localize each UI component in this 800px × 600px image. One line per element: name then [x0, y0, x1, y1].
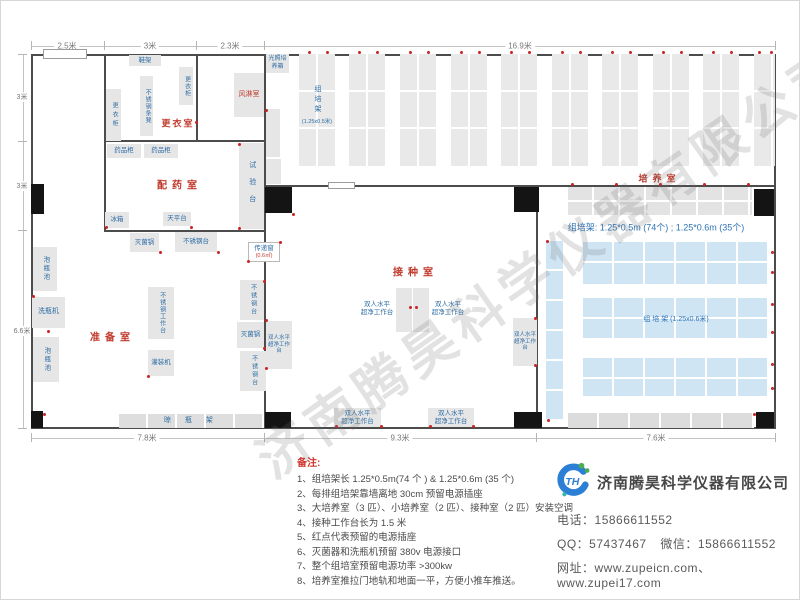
power-socket-dot [105, 226, 108, 229]
qq-number: 57437467 [589, 537, 646, 551]
dim-tick [104, 41, 105, 50]
power-socket-dot [292, 213, 295, 216]
power-socket-dot [770, 51, 773, 54]
phone-label: 电话： [557, 513, 595, 527]
dim-tick [31, 41, 32, 50]
blue-rack-vertical [546, 241, 563, 421]
culture-rack [754, 54, 775, 166]
dim-tick [18, 54, 27, 55]
clean-bench-right: 双人水平 超净工作台 [513, 318, 537, 366]
wardrobe-left: 更衣柜 [106, 89, 121, 141]
bottle-pool: 泡瓶池 [33, 337, 59, 382]
transfer-window-size: (0.6㎡) [256, 253, 273, 259]
power-socket-dot [730, 51, 733, 54]
power-socket-dot [265, 319, 268, 322]
power-socket-dot [534, 317, 537, 320]
clean-bench-line2: 超净工作台 [432, 309, 465, 317]
power-socket-dot [771, 303, 774, 306]
power-socket-dot [771, 251, 774, 254]
power-socket-dot [238, 227, 241, 230]
room-label-prep: 准备室 [85, 329, 135, 344]
power-socket-dot [263, 347, 266, 350]
dim-tick [775, 41, 776, 50]
wall-inoculation-right [536, 185, 538, 429]
company-phone-line: 电话：15866611552 [557, 511, 793, 528]
wechat-label: 微信： [660, 537, 698, 551]
notes-title: 备注: [297, 454, 597, 469]
clean-bench-line1: 双人水平 [435, 301, 461, 309]
power-socket-dot [217, 251, 220, 254]
door-opening [514, 187, 539, 212]
door-opening [31, 184, 44, 214]
medicine-cabinet: 药品柜 [107, 144, 141, 158]
gray-rack-bottom [568, 413, 754, 428]
culture-rack-label: 组培架 (1.25x0.5米) [298, 85, 336, 125]
rack-name: 组培架 [312, 85, 322, 115]
clean-bench-line2: 超净工作台 [361, 309, 394, 317]
culture-rack [451, 54, 487, 166]
door-opening [756, 412, 774, 428]
floor-plan-page: 2.5米 3米 2.3米 16.9米 3米 3米 6.6米 7.8米 9.3米 … [0, 0, 800, 600]
company-name: 济南腾昊科学仪器有限公司 [597, 472, 789, 493]
clean-bench-bottom: 双人水平 超净工作台 [334, 408, 381, 427]
dim-tick [18, 428, 27, 429]
power-socket-dot [415, 306, 418, 309]
balance-table: 天平台 [163, 212, 191, 226]
clean-bench-line2: 超净工作台 [266, 342, 292, 355]
power-socket-dot [662, 51, 665, 54]
phone-number: 15866611552 [595, 513, 673, 527]
power-socket-dot [380, 425, 383, 428]
light-incubator: 光照培养箱 [266, 54, 289, 73]
culture-rack [501, 54, 537, 166]
blue-rack-label: 组 培 架 (1.25x0.6米) [643, 314, 708, 324]
power-socket-dot [472, 425, 475, 428]
power-socket-dot [478, 51, 481, 54]
note-item: 4、接种工作台长为 1.5 米 [297, 517, 597, 532]
culture-rack [552, 54, 588, 166]
power-socket-dot [680, 51, 683, 54]
power-socket-dot [409, 306, 412, 309]
power-socket-dot [571, 183, 574, 186]
clean-bench-line1: 双人水平 [268, 335, 290, 342]
power-socket-dot [308, 51, 311, 54]
dim-bottom-2: 9.3米 [387, 433, 412, 444]
power-socket-dot [358, 51, 361, 54]
clean-bench-line2: 超净工作台 [341, 418, 374, 426]
wardrobe-right: 更衣柜 [179, 67, 193, 105]
power-socket-dot [771, 331, 774, 334]
wall-changing-left [104, 54, 106, 232]
dim-tick [18, 230, 27, 231]
power-socket-dot [546, 240, 549, 243]
company-qq-line: QQ：57437467 微信：15866611552 [557, 535, 793, 552]
dim-bottom-3: 7.6米 [643, 433, 668, 444]
steel-table: 不锈钢台 [240, 280, 264, 320]
door-opening [754, 189, 774, 216]
power-socket-dot [629, 51, 632, 54]
dim-tick [264, 41, 265, 50]
room-label-changing: 更衣室 [159, 117, 194, 130]
power-socket-dot [712, 51, 715, 54]
culture-rack [349, 54, 385, 166]
company-web-line: 网址：www.zupeicn.com、www.zupei17.com [557, 559, 793, 590]
power-socket-dot [159, 251, 162, 254]
dim-left-1: 3米 [14, 92, 31, 102]
power-socket-dot [703, 183, 706, 186]
power-socket-dot [43, 413, 46, 416]
clean-bench-label: 双人水平 超净工作台 [430, 301, 466, 317]
filling-machine: 灌装机 [148, 350, 174, 376]
power-socket-dot [753, 413, 756, 416]
culture-rack [400, 54, 436, 166]
power-socket-dot [409, 51, 412, 54]
clean-bench-line1: 双人水平 [514, 332, 536, 339]
power-socket-dot [279, 241, 282, 244]
notes-block: 备注: 1、组培架长 1.25*0.5m(74 个 ) & 1.25*0.6m … [297, 454, 597, 589]
incubator-box [266, 109, 280, 157]
power-socket-dot [265, 109, 268, 112]
company-logo-icon: TH [553, 461, 591, 499]
test-bench: 试验台 [239, 143, 264, 229]
clean-bench-line1: 双人水平 [364, 301, 390, 309]
door-opening [265, 187, 292, 213]
dim-top-3: 2.3米 [217, 41, 242, 52]
power-socket-dot [263, 280, 266, 283]
power-socket-dot [771, 363, 774, 366]
note-item: 8、培养室推拉门地轨和地面一平，方便小推车推送。 [297, 575, 597, 590]
door-opening [265, 412, 291, 428]
power-socket-dot [579, 51, 582, 54]
window-top-left [43, 49, 87, 59]
dim-tick [775, 433, 776, 442]
note-item: 2、每排组培架靠墙离地 30cm 预留电源插座 [297, 488, 597, 503]
company-block: TH 济南腾昊科学仪器有限公司 电话：15866611552 QQ：574374… [553, 461, 793, 590]
shoe-rack: 鞋架 [129, 55, 161, 66]
logo-text: TH [565, 477, 579, 488]
power-socket-dot [534, 364, 537, 367]
sterilizer: 灭菌锅 [130, 233, 159, 252]
transfer-window-label: 传递窗 [254, 245, 274, 252]
steel-workbench: 不锈钢工作台 [148, 287, 174, 339]
steel-strip-bench: 不锈钢条凳 [140, 76, 153, 136]
clean-bench-label: 双人水平 超净工作台 [359, 301, 395, 317]
transfer-window: 传递窗 (0.6㎡) [248, 242, 280, 262]
blue-rack-row [583, 358, 769, 396]
room-label-dispensing: 配药室 [152, 177, 202, 192]
note-item: 5、红点代表预留的电源插座 [297, 531, 597, 546]
dim-line-left [23, 54, 24, 429]
fridge: 冰箱 [105, 212, 129, 228]
dim-left-3: 6.6米 [11, 326, 34, 336]
power-socket-dot [335, 425, 338, 428]
power-socket-dot [771, 387, 774, 390]
power-socket-dot [147, 375, 150, 378]
company-logo: TH [553, 461, 591, 504]
power-socket-dot [615, 183, 618, 186]
culture-rack [602, 54, 638, 166]
clean-bench-line2: 超净工作台 [435, 418, 468, 426]
dim-tick [196, 41, 197, 50]
power-socket-dot [47, 330, 50, 333]
power-socket-dot [238, 143, 241, 146]
power-socket-dot [611, 51, 614, 54]
power-socket-dot [427, 51, 430, 54]
dim-top-2: 3米 [141, 41, 159, 52]
power-socket-dot [376, 51, 379, 54]
clean-bench-box [413, 288, 429, 332]
qq-label: QQ： [557, 537, 589, 551]
power-socket-dot [747, 183, 750, 186]
window-inoculation-top [328, 182, 355, 189]
culture-rack [703, 54, 739, 166]
clean-bench-line1: 双人水平 [345, 410, 371, 418]
power-socket-dot [32, 295, 35, 298]
power-socket-dot [547, 419, 550, 422]
power-socket-dot [758, 51, 761, 54]
door-opening [31, 411, 43, 428]
dim-left-2: 3米 [14, 181, 31, 191]
culture-rack [653, 54, 689, 166]
air-shower-box: 风淋室 [234, 73, 264, 117]
wall-airshower-left [196, 54, 198, 142]
rack-size: (1.25x0.5米) [302, 117, 332, 125]
website-separator: 、 [698, 561, 711, 575]
steel-table: 不锈钢台 [175, 232, 217, 252]
dim-tick [18, 141, 27, 142]
sterilizer: 灭菌锅 [237, 322, 264, 348]
blue-rack-row [583, 242, 769, 284]
power-socket-dot [326, 51, 329, 54]
clean-bench-box [396, 288, 412, 332]
power-socket-dot [460, 51, 463, 54]
bottle-pool: 泡瓶池 [33, 247, 57, 291]
power-socket-dot [247, 260, 250, 263]
power-socket-dot [195, 121, 198, 124]
room-label-culture: 培养室 [633, 172, 680, 185]
steel-table: 不锈钢台 [240, 351, 266, 391]
website-1: www.zupeicn.com [595, 561, 699, 575]
culture-rack-horizontal [568, 187, 752, 215]
bottle-washer: 洗瓶机 [32, 297, 65, 328]
website-2: www.zupei17.com [557, 576, 661, 590]
power-socket-dot [429, 425, 432, 428]
clean-bench-left: 双人水平 超净工作台 [266, 321, 292, 369]
power-socket-dot [561, 51, 564, 54]
note-item: 1、组培架长 1.25*0.5m(74 个 ) & 1.25*0.6m (35 … [297, 473, 597, 488]
dim-bottom-1: 7.8米 [134, 433, 159, 444]
wechat-number: 15866611552 [698, 537, 776, 551]
power-socket-dot [659, 183, 662, 186]
rack-summary: 组培架: 1.25*0.5m (74个) ; 1.25*0.6m (35个) [568, 221, 745, 234]
power-socket-dot [190, 226, 193, 229]
clean-bench-bottom: 双人水平 超净工作台 [428, 408, 474, 427]
note-item: 7、整个组培室预留电源功率 >300kw [297, 560, 597, 575]
dim-top-4: 16.9米 [505, 41, 535, 52]
dim-tick [31, 433, 32, 442]
wall-changing-bottom [104, 140, 266, 142]
note-item: 6、灭菌器和洗瓶机预留 380v 电源接口 [297, 546, 597, 561]
power-socket-dot [510, 51, 513, 54]
door-opening [514, 412, 542, 428]
drying-rack: 晾 瓶 架 [119, 414, 264, 428]
clean-bench-line2: 超净工作台 [513, 339, 537, 352]
room-label-inoculation: 接种室 [388, 264, 438, 279]
dim-tick [264, 433, 265, 442]
dim-tick [536, 433, 537, 442]
power-socket-dot [265, 367, 268, 370]
power-socket-dot [771, 271, 774, 274]
clean-bench-line1: 双人水平 [438, 410, 464, 418]
incubator-box [266, 159, 281, 184]
medicine-cabinet: 药品柜 [144, 144, 178, 158]
power-socket-dot [528, 51, 531, 54]
web-label: 网址： [557, 561, 595, 575]
note-item: 3、大培养室（3 匹）、小培养室（2 匹）、接种室（2 匹）安装空调 [297, 502, 597, 517]
